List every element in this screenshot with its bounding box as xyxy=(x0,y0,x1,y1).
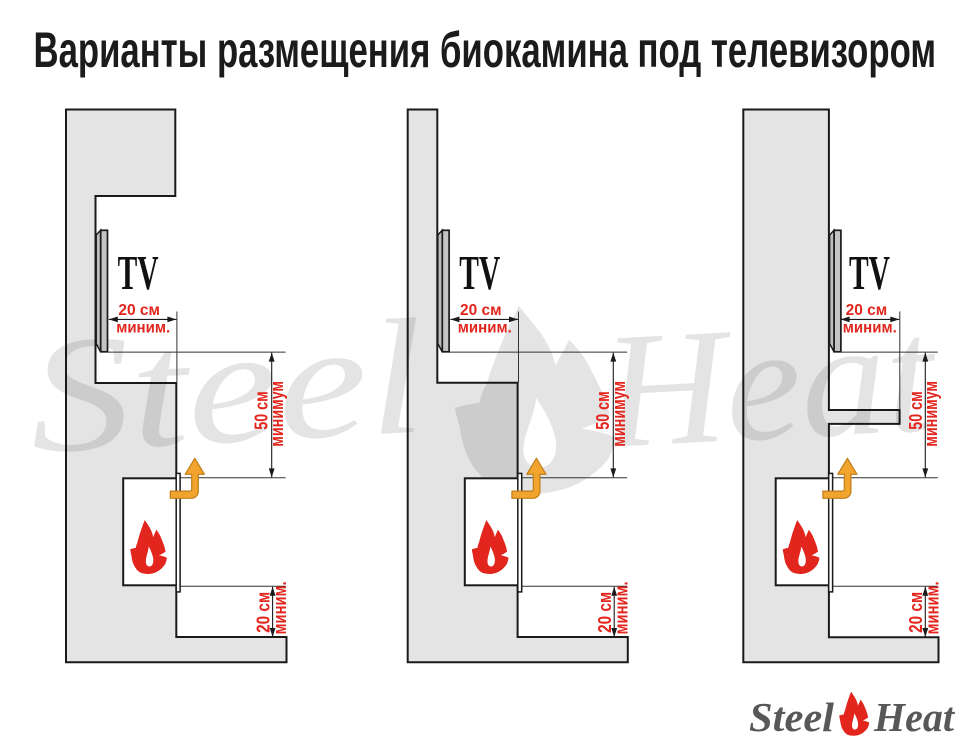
svg-text:миним.: миним. xyxy=(923,581,943,634)
svg-text:миним.: миним. xyxy=(116,319,170,336)
svg-text:Steel: Steel xyxy=(24,285,428,488)
svg-text:20 см: 20 см xyxy=(846,302,888,319)
svg-text:Heat: Heat xyxy=(873,694,956,740)
svg-text:минимум: минимум xyxy=(267,381,287,447)
svg-text:20 см: 20 см xyxy=(460,302,502,319)
svg-text:миним.: миним. xyxy=(270,581,290,634)
svg-text:Steel: Steel xyxy=(749,694,835,740)
svg-text:миним.: миним. xyxy=(611,581,631,634)
svg-text:TV: TV xyxy=(459,245,500,300)
svg-text:миним.: миним. xyxy=(458,319,512,336)
svg-text:20 см: 20 см xyxy=(118,302,160,319)
svg-text:Варианты размещения биокамина: Варианты размещения биокамина под телеви… xyxy=(34,22,937,78)
svg-text:TV: TV xyxy=(849,245,890,300)
svg-text:минимум: минимум xyxy=(921,381,941,447)
svg-text:минимум: минимум xyxy=(609,381,629,447)
svg-text:TV: TV xyxy=(118,245,159,300)
svg-text:миним.: миним. xyxy=(843,319,897,336)
svg-text:Heat: Heat xyxy=(596,283,941,483)
